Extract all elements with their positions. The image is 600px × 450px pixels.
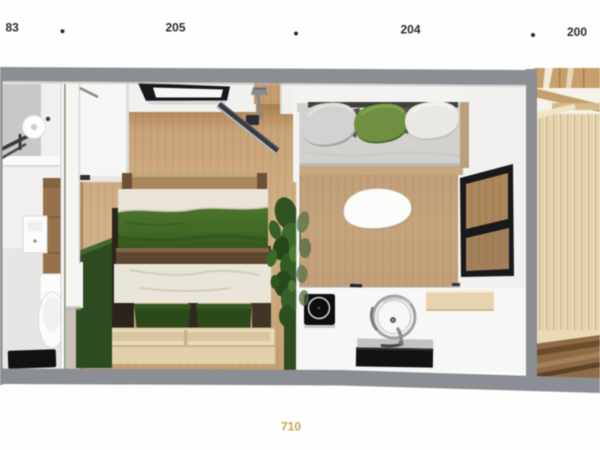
svg-text:200: 200	[567, 25, 587, 39]
svg-text:205: 205	[166, 20, 186, 34]
svg-text:83: 83	[6, 20, 20, 34]
svg-text:204: 204	[401, 23, 421, 37]
svg-text:710: 710	[281, 420, 301, 434]
